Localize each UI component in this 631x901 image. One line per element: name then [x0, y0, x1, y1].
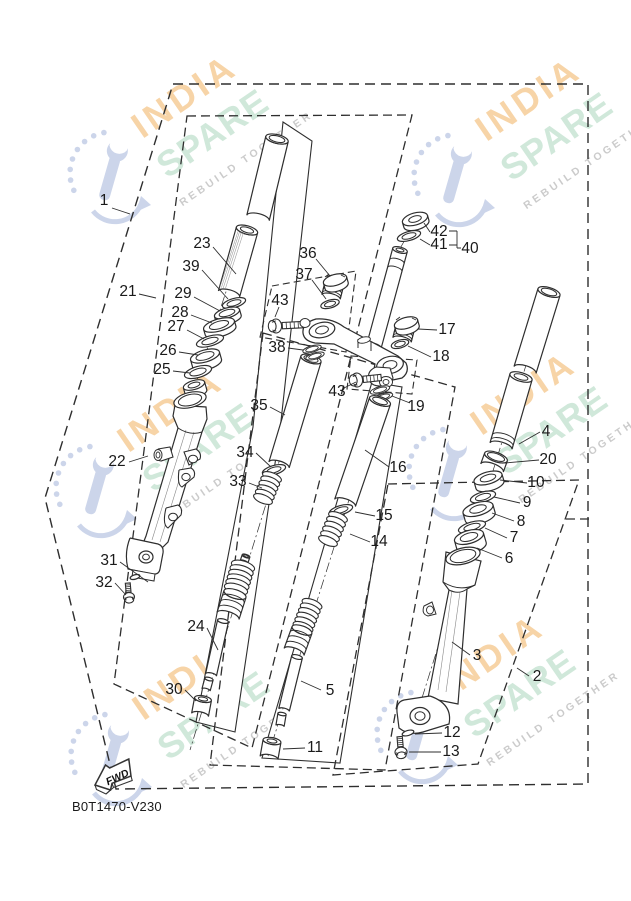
- svg-text:13: 13: [442, 743, 459, 760]
- svg-text:21: 21: [119, 283, 136, 300]
- svg-text:26: 26: [159, 342, 176, 359]
- svg-text:19: 19: [407, 398, 424, 415]
- svg-text:3: 3: [473, 647, 482, 664]
- svg-text:35: 35: [250, 397, 267, 414]
- svg-text:43: 43: [271, 292, 288, 309]
- svg-text:1: 1: [100, 192, 109, 209]
- svg-text:27: 27: [167, 318, 184, 335]
- svg-text:29: 29: [174, 285, 191, 302]
- svg-text:23: 23: [193, 235, 210, 252]
- svg-text:8: 8: [517, 513, 526, 530]
- svg-text:18: 18: [432, 348, 449, 365]
- svg-text:25: 25: [153, 361, 170, 378]
- svg-text:33: 33: [229, 473, 246, 490]
- svg-text:6: 6: [505, 550, 514, 567]
- svg-text:30: 30: [165, 681, 183, 698]
- svg-text:24: 24: [187, 618, 205, 635]
- svg-text:43: 43: [328, 383, 345, 400]
- svg-text:41: 41: [430, 236, 447, 253]
- svg-text:15: 15: [375, 507, 392, 524]
- svg-text:34: 34: [236, 444, 254, 461]
- svg-text:16: 16: [389, 459, 406, 476]
- svg-text:B0T1470-V230: B0T1470-V230: [72, 799, 162, 814]
- svg-text:12: 12: [443, 724, 460, 741]
- svg-text:37: 37: [295, 266, 312, 283]
- svg-text:10: 10: [527, 474, 545, 491]
- svg-text:9: 9: [523, 494, 532, 511]
- svg-text:38: 38: [268, 339, 285, 356]
- svg-text:2: 2: [533, 668, 542, 685]
- svg-text:39: 39: [182, 258, 199, 275]
- svg-text:5: 5: [326, 682, 335, 699]
- svg-text:40: 40: [461, 240, 479, 257]
- svg-text:4: 4: [542, 423, 551, 440]
- svg-text:22: 22: [108, 453, 125, 470]
- svg-text:20: 20: [539, 451, 557, 468]
- svg-text:7: 7: [510, 529, 519, 546]
- svg-text:32: 32: [95, 574, 112, 591]
- svg-text:11: 11: [307, 739, 323, 756]
- svg-text:17: 17: [438, 321, 455, 338]
- svg-text:31: 31: [100, 552, 117, 569]
- svg-text:14: 14: [370, 533, 388, 550]
- svg-text:36: 36: [299, 245, 316, 262]
